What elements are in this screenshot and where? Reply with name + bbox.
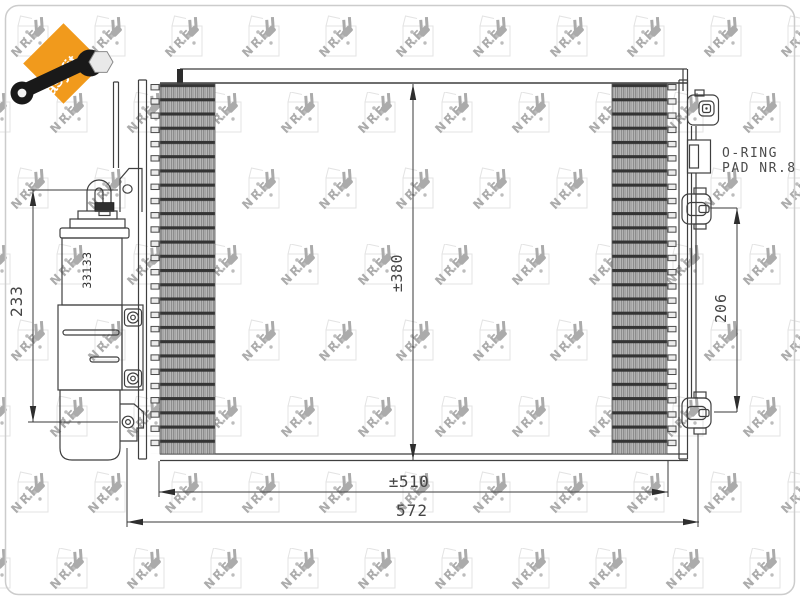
rail-left-connector: [177, 69, 183, 84]
pipe-nut: [95, 203, 114, 212]
condenser-technical-drawing: NRF: [0, 0, 800, 600]
dim-core-height-label: ±380: [388, 254, 406, 292]
part-number-label: 33133: [80, 251, 94, 288]
dim-overall-width-label: 572: [396, 501, 428, 520]
catalog-drawing-page: NRF: [0, 0, 800, 600]
oring-note-line2: PAD NR.8: [722, 161, 797, 176]
oring-note-line1: O-RING: [722, 146, 778, 161]
core-hatch-left: [160, 84, 215, 454]
tube-ends-left: [151, 84, 161, 454]
tube-ends-right: [667, 84, 677, 454]
dim-drier-height-label: 233: [7, 285, 26, 317]
core-hatch-right: [612, 84, 667, 454]
dim-port-distance-label: 206: [712, 293, 730, 323]
dim-core-width-label: ±510: [389, 472, 430, 491]
